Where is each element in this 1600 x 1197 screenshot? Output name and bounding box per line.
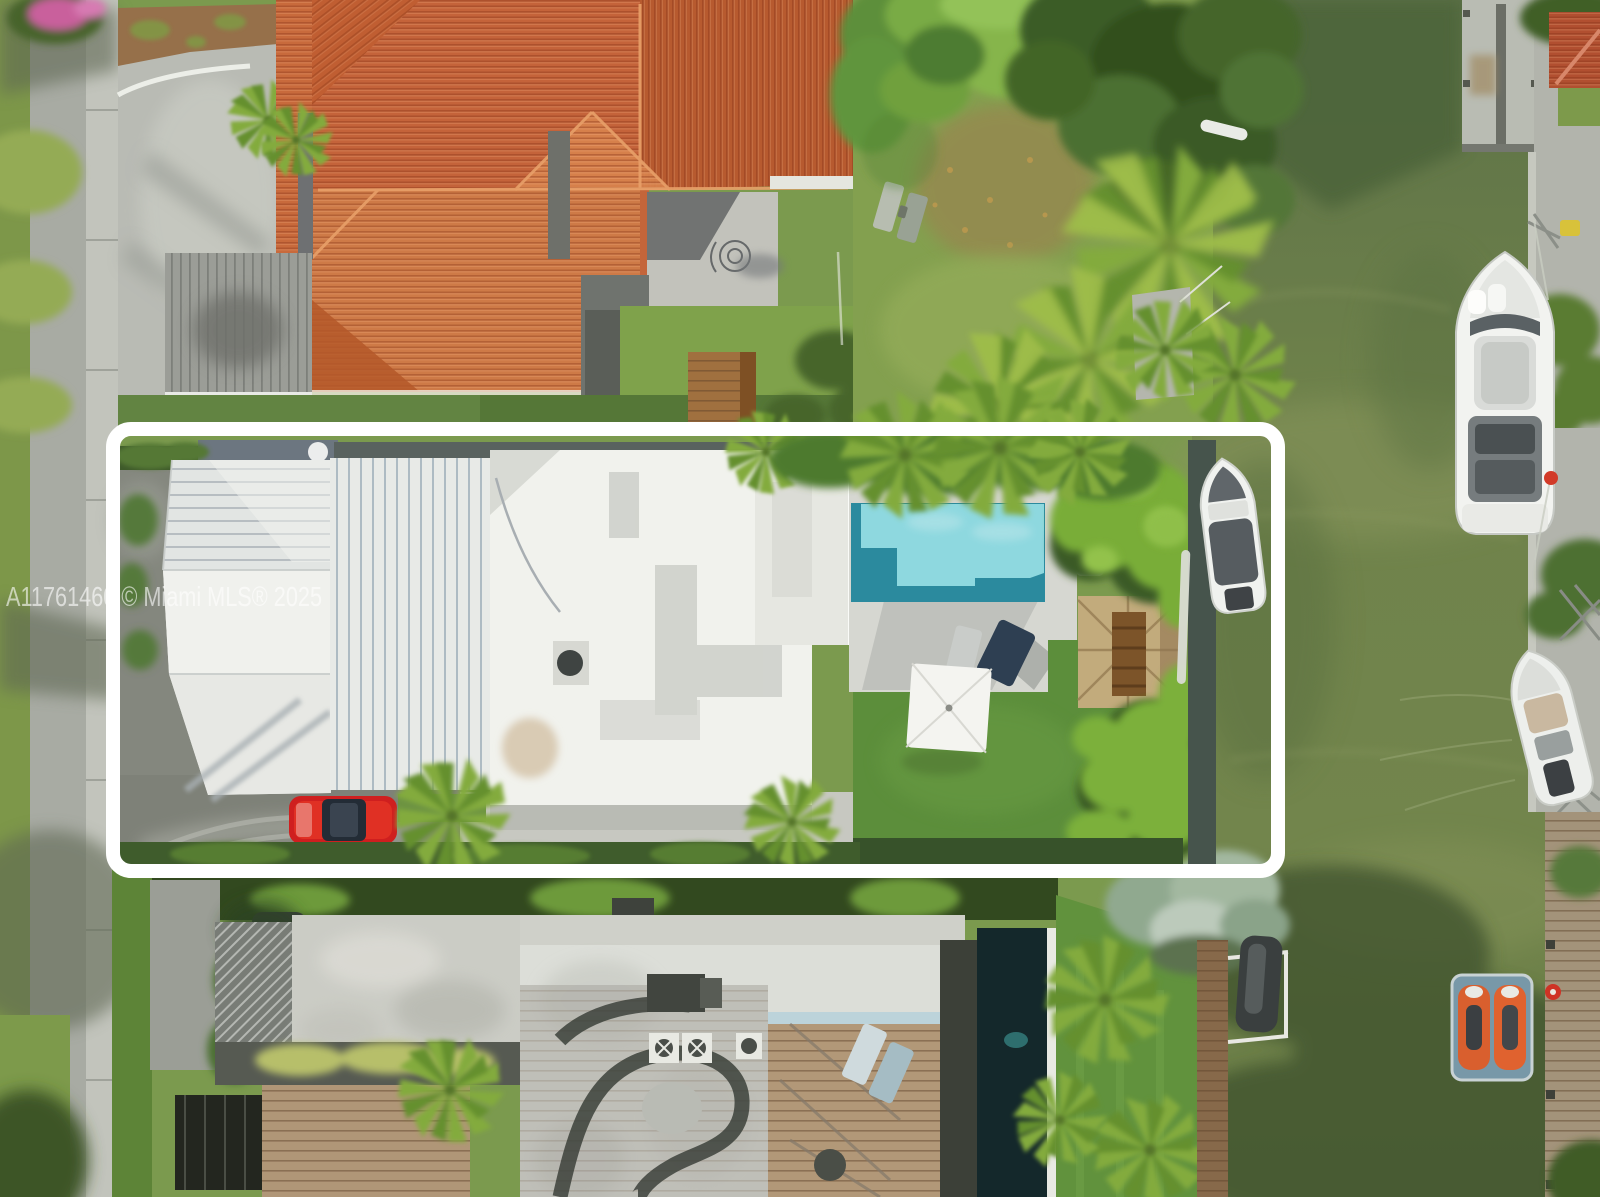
svg-text:A11761460 © Miami MLS® 2025: A11761460 © Miami MLS® 2025 xyxy=(6,581,322,612)
